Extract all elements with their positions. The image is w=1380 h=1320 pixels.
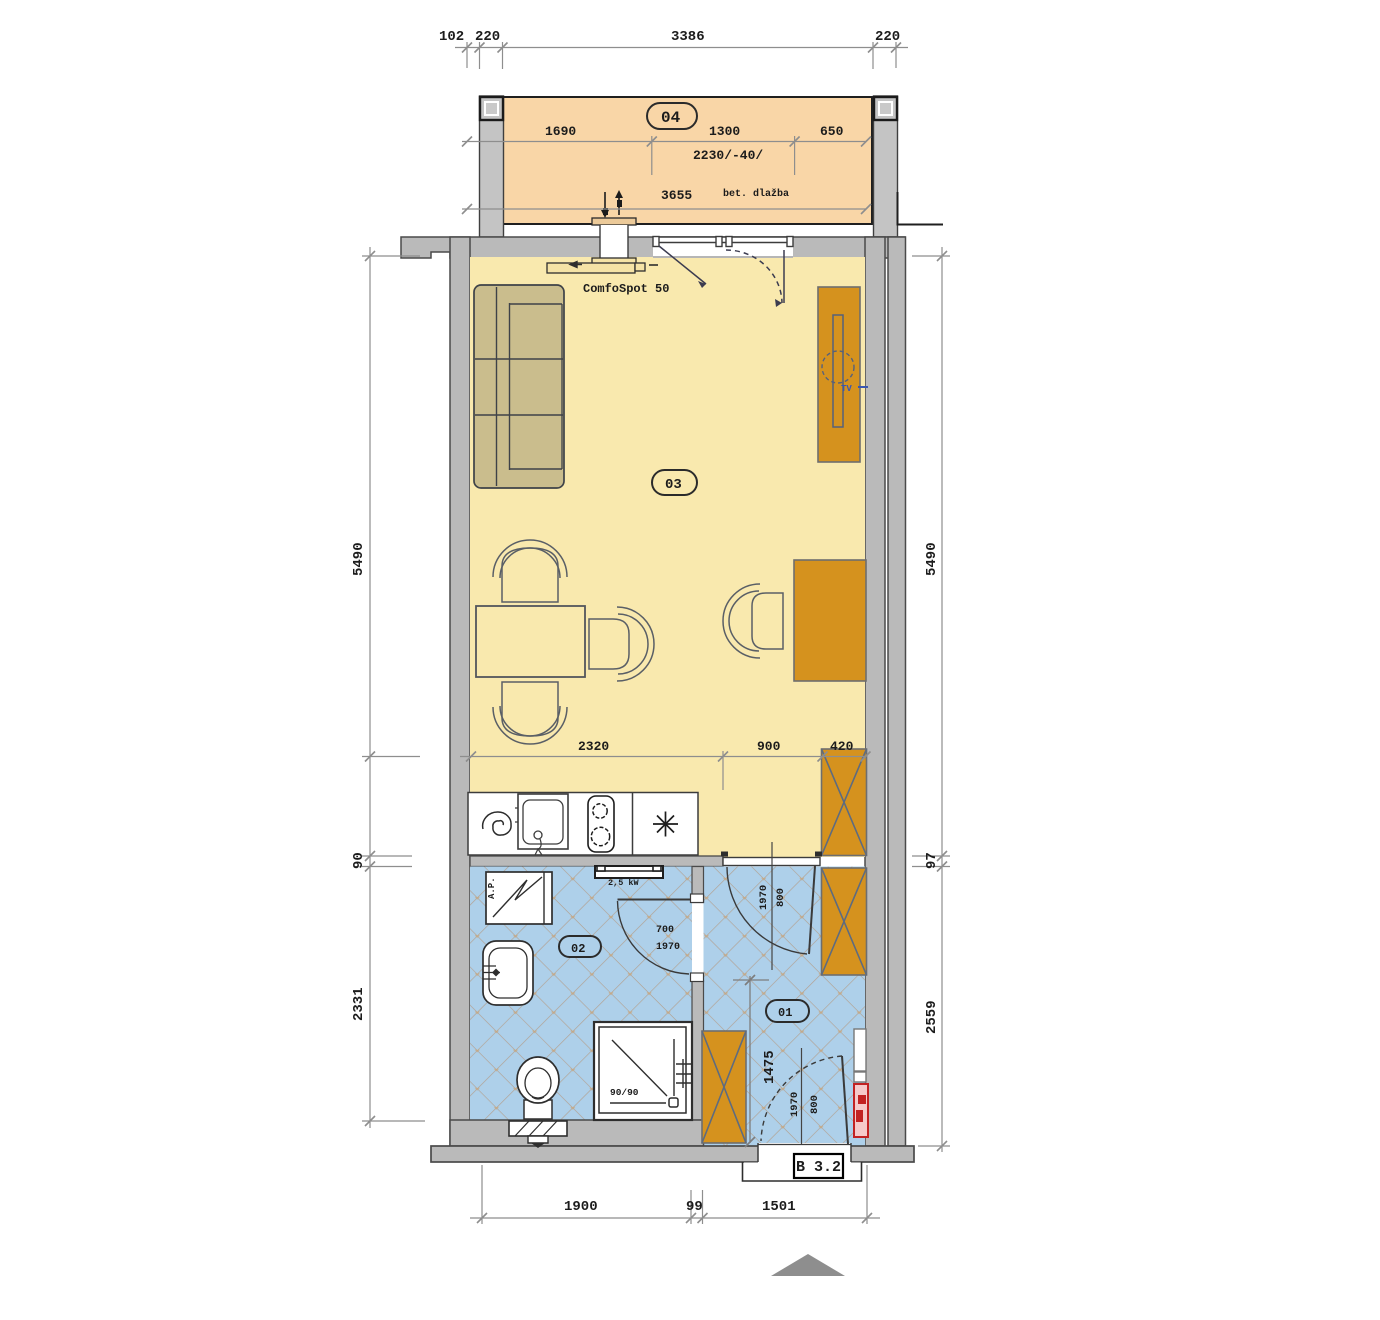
svg-text:1970: 1970 <box>758 885 770 910</box>
svg-text:650: 650 <box>820 124 844 139</box>
svg-text:220: 220 <box>875 29 900 45</box>
svg-text:1900: 1900 <box>564 1199 598 1215</box>
svg-text:A.P.: A.P. <box>487 877 497 899</box>
svg-text:90: 90 <box>351 852 367 869</box>
svg-text:5490: 5490 <box>351 542 367 576</box>
svg-text:B 3.2: B 3.2 <box>796 1159 841 1176</box>
svg-text:1501: 1501 <box>762 1199 796 1215</box>
svg-text:3386: 3386 <box>671 29 705 45</box>
svg-text:97: 97 <box>924 852 940 869</box>
svg-text:3655: 3655 <box>661 188 692 203</box>
svg-text:1970: 1970 <box>656 942 680 953</box>
svg-text:900: 900 <box>757 739 781 754</box>
svg-text:03: 03 <box>665 477 682 493</box>
svg-text:01: 01 <box>778 1006 792 1020</box>
svg-text:02: 02 <box>571 942 585 956</box>
svg-text:102: 102 <box>439 29 464 45</box>
svg-text:2,5 kW: 2,5 kW <box>608 878 640 888</box>
svg-text:99: 99 <box>686 1199 703 1215</box>
svg-text:2331: 2331 <box>351 987 367 1021</box>
svg-text:800: 800 <box>775 888 787 907</box>
svg-text:1970: 1970 <box>789 1092 801 1117</box>
svg-text:2559: 2559 <box>924 1000 940 1034</box>
svg-text:TV: TV <box>841 384 852 394</box>
svg-text:1475: 1475 <box>762 1050 778 1084</box>
svg-text:1690: 1690 <box>545 124 576 139</box>
svg-text:1300: 1300 <box>709 124 740 139</box>
svg-text:ComfoSpot 50: ComfoSpot 50 <box>583 282 669 296</box>
svg-text:2320: 2320 <box>578 739 609 754</box>
svg-text:2230/-40/: 2230/-40/ <box>693 148 763 163</box>
svg-text:04: 04 <box>661 109 681 127</box>
svg-text:800: 800 <box>809 1095 821 1114</box>
svg-text:5490: 5490 <box>924 542 940 576</box>
svg-text:220: 220 <box>475 29 500 45</box>
svg-text:700: 700 <box>656 925 674 936</box>
svg-text:90/90: 90/90 <box>610 1087 639 1098</box>
svg-text:bet. dlažba: bet. dlažba <box>723 188 789 200</box>
svg-text:420: 420 <box>830 739 854 754</box>
